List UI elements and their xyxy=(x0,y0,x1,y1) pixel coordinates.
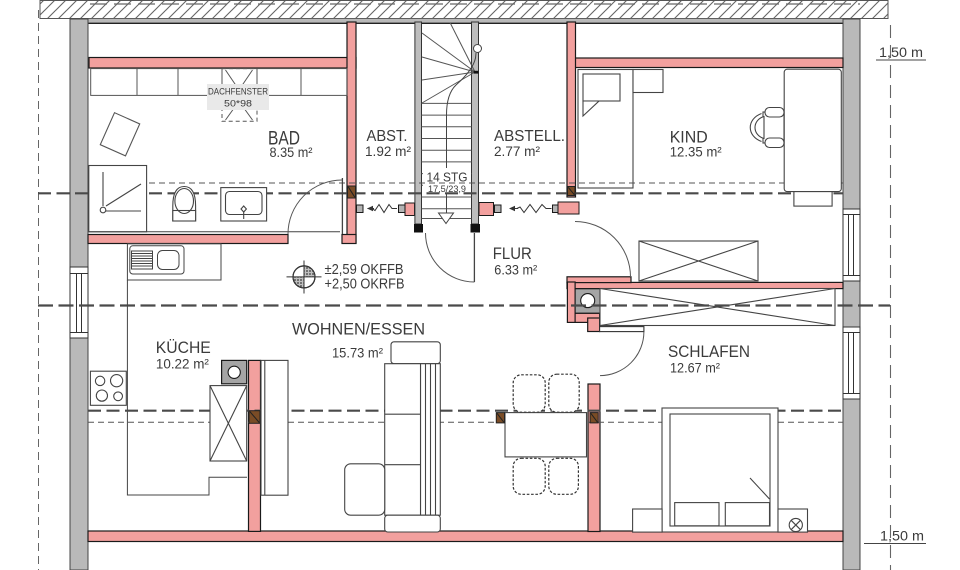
svg-text:12.35 m²: 12.35 m² xyxy=(670,145,722,160)
svg-text:8.35 m²: 8.35 m² xyxy=(270,144,313,160)
svg-text:1,50 m: 1,50 m xyxy=(880,529,924,544)
svg-text:DACHFENSTER: DACHFENSTER xyxy=(208,87,268,98)
svg-text:14 STG: 14 STG xyxy=(427,171,468,185)
svg-text:15.73 m²: 15.73 m² xyxy=(332,346,383,361)
svg-text:SCHLAFEN: SCHLAFEN xyxy=(668,343,750,361)
svg-text:12.67 m²: 12.67 m² xyxy=(670,361,720,376)
svg-text:2.77 m²: 2.77 m² xyxy=(494,144,540,159)
svg-text:10.22 m²: 10.22 m² xyxy=(156,357,209,372)
svg-text:KÜCHE: KÜCHE xyxy=(156,339,211,357)
svg-text:WOHNEN/ESSEN: WOHNEN/ESSEN xyxy=(292,321,425,339)
svg-text:+2,50 OKRFB: +2,50 OKRFB xyxy=(325,276,405,292)
svg-text:50*98: 50*98 xyxy=(224,99,252,110)
svg-text:FLUR: FLUR xyxy=(493,245,532,263)
svg-text:ABSTELL.: ABSTELL. xyxy=(494,128,565,145)
svg-text:ABST.: ABST. xyxy=(367,128,408,145)
svg-text:1,50 m: 1,50 m xyxy=(879,45,923,60)
svg-text:6.33 m²: 6.33 m² xyxy=(494,263,537,278)
svg-text:1.92 m²: 1.92 m² xyxy=(365,144,411,159)
